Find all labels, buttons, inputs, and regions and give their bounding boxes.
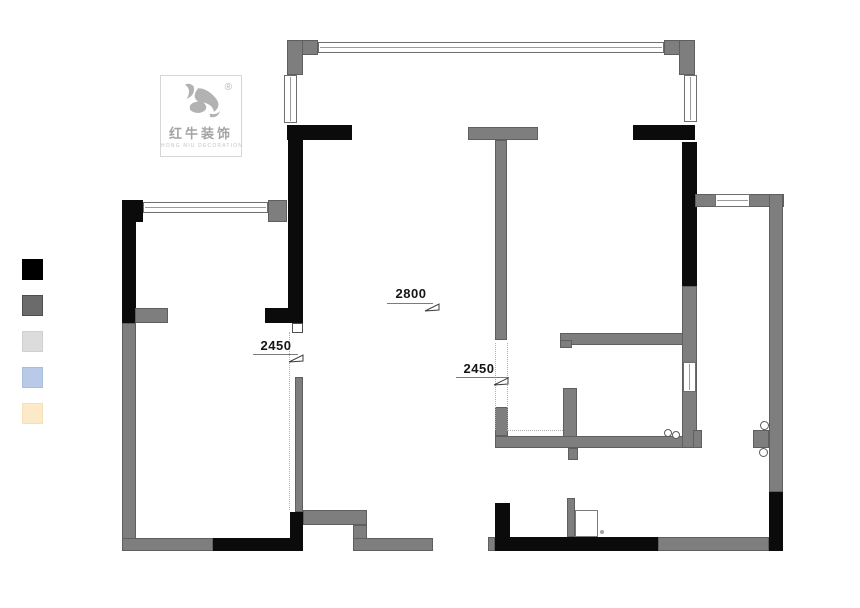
- wall-gray: [567, 498, 575, 537]
- wall-black: [288, 140, 303, 323]
- wall-gray: [287, 40, 303, 75]
- wall-gray: [468, 127, 538, 140]
- pipe-circle: [672, 431, 680, 439]
- dimension-arrow-icon: [288, 354, 305, 364]
- pipe-circle: [760, 421, 769, 430]
- dimension-label: 2450: [254, 338, 298, 353]
- wall-gray: [135, 308, 168, 323]
- floor-drain-dot: [600, 530, 604, 534]
- legend-swatch-light-gray: [22, 331, 43, 352]
- dimension-label: 2450: [457, 361, 501, 376]
- wall-black: [495, 537, 658, 551]
- floorplan-canvas: ® 红牛装饰 HONG NIU DECORATION 280024502450: [0, 0, 860, 608]
- door-leaf: [575, 510, 598, 537]
- wall-black: [495, 503, 510, 537]
- brand-name-cn: 红牛装饰: [161, 123, 241, 142]
- wall-black: [122, 222, 136, 323]
- window: [683, 362, 696, 392]
- legend-swatch-light-blue: [22, 367, 43, 388]
- wall-black: [633, 125, 695, 140]
- wall-gray: [679, 40, 695, 75]
- wall-gray: [353, 538, 433, 551]
- wall-gray: [560, 333, 683, 345]
- brand-logo-box: ® 红牛装饰 HONG NIU DECORATION: [160, 75, 242, 157]
- wall-black: [769, 492, 783, 551]
- legend-swatch-cream: [22, 403, 43, 424]
- brand-name-en: HONG NIU DECORATION: [161, 143, 241, 149]
- legend-swatch-dark-gray: [22, 295, 43, 316]
- window: [715, 194, 750, 207]
- legend-swatch-black: [22, 259, 43, 280]
- wall-black: [213, 538, 303, 551]
- pipe-circle: [664, 429, 672, 437]
- wall-gray: [753, 430, 769, 448]
- window: [143, 202, 268, 213]
- wall-black: [290, 512, 303, 538]
- wall-black: [287, 125, 352, 140]
- wall-black: [682, 142, 697, 286]
- wall-gray: [495, 140, 507, 340]
- wall-gray: [295, 377, 303, 512]
- window: [318, 42, 664, 53]
- window: [684, 75, 697, 122]
- wall-gray: [303, 510, 367, 525]
- wall-gray: [693, 430, 702, 448]
- wall-gray: [560, 340, 572, 348]
- wall-gray: [495, 436, 697, 448]
- dimension-label: 2800: [388, 286, 434, 301]
- wall-gray: [568, 448, 578, 460]
- door-frame: [292, 323, 303, 333]
- bull-logo-icon: [171, 82, 227, 126]
- window: [284, 75, 297, 123]
- wall-gray: [122, 323, 136, 551]
- material-legend: [22, 259, 43, 439]
- dashed-line: [507, 430, 563, 431]
- wall-black: [122, 200, 143, 222]
- pipe-circle: [759, 448, 768, 457]
- registered-trademark-icon: ®: [225, 82, 232, 93]
- wall-gray: [122, 538, 213, 551]
- wall-gray: [769, 194, 783, 492]
- wall-black: [265, 308, 303, 323]
- dimension-arrow-icon: [493, 377, 510, 387]
- wall-gray: [658, 537, 769, 551]
- wall-gray: [268, 200, 287, 222]
- wall-gray: [488, 537, 495, 551]
- dimension-arrow-icon: [424, 303, 441, 313]
